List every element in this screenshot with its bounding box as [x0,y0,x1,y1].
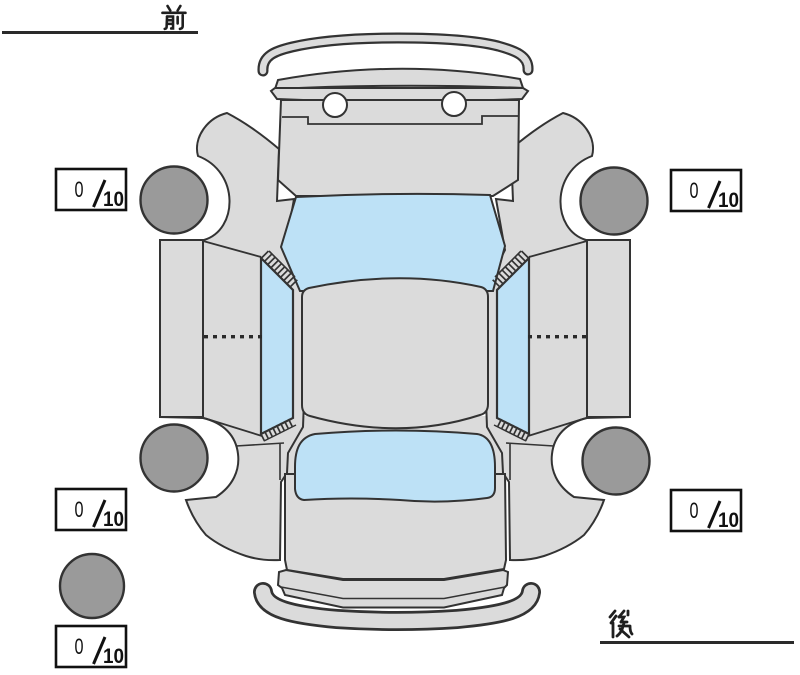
svg-text:10: 10 [103,644,124,668]
svg-text:0: 0 [690,498,699,523]
svg-text:0: 0 [75,634,84,659]
svg-text:0: 0 [690,178,699,203]
svg-text:10: 10 [103,187,124,211]
svg-text:10: 10 [103,507,124,531]
svg-text:10: 10 [718,508,739,532]
svg-text:0: 0 [75,177,84,202]
svg-text:10: 10 [718,188,739,212]
svg-text:0: 0 [75,497,84,522]
